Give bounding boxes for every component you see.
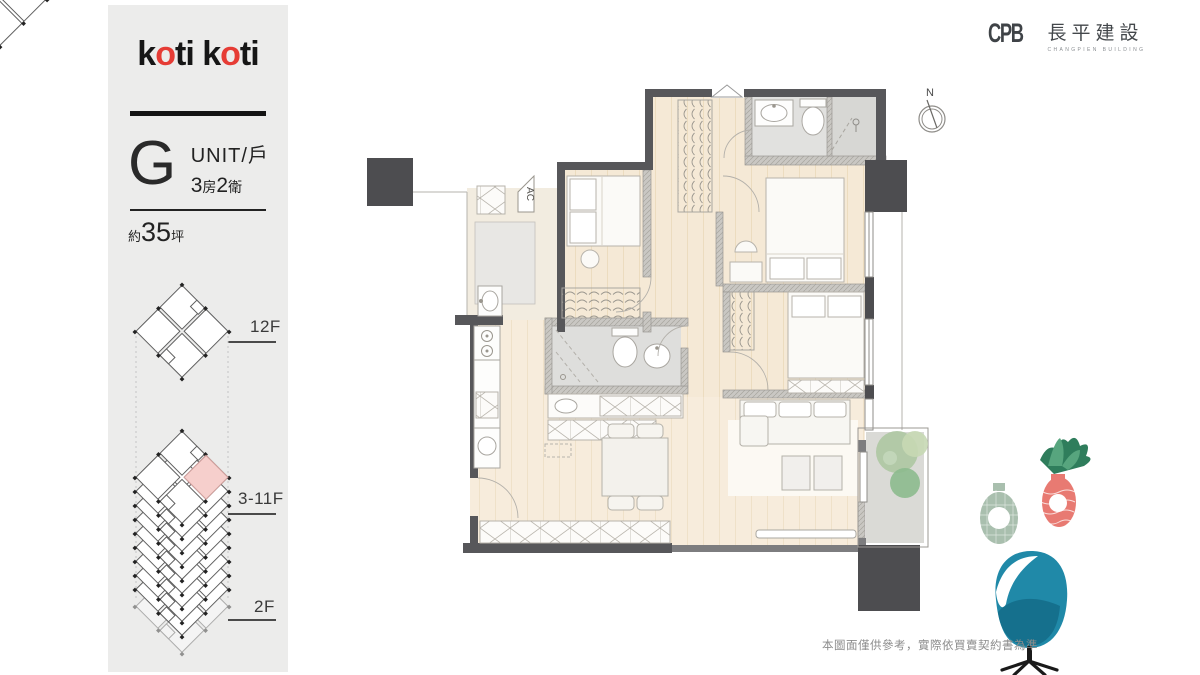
column-bottomright <box>858 545 920 611</box>
plant <box>902 431 928 457</box>
column-topright <box>865 160 907 212</box>
sofa-cushion <box>779 402 811 417</box>
chaise <box>740 416 768 446</box>
egg-chair-illustration <box>995 551 1067 675</box>
coral-vase-illustration <box>1040 438 1091 527</box>
floor-plan: AC <box>367 85 928 611</box>
pillow <box>828 296 861 317</box>
side-table <box>730 262 762 282</box>
chair <box>637 496 663 510</box>
hall-closet <box>678 100 712 212</box>
balcony-slider <box>860 452 867 502</box>
toilet-tank <box>612 328 638 336</box>
vanity-basin <box>555 399 577 413</box>
pantry-cabinet <box>477 186 505 214</box>
plan-graphics: AC N <box>0 0 1200 675</box>
top-entry-door <box>712 85 744 98</box>
pillow <box>570 179 596 210</box>
coffee-table <box>782 456 810 490</box>
pillow <box>792 296 825 317</box>
dining-table <box>602 438 668 496</box>
stove <box>474 326 500 360</box>
north-label: N <box>926 87 934 99</box>
column-topleft <box>367 158 413 206</box>
chair <box>608 424 634 438</box>
floor-plate <box>0 0 49 49</box>
company-logo-mark: CPB <box>988 18 1023 49</box>
wardrobe <box>730 292 754 350</box>
plant <box>890 468 920 498</box>
nightstand <box>581 250 599 268</box>
pillow <box>770 258 804 279</box>
stacking-diagram <box>0 0 231 656</box>
toilet-icon <box>613 337 637 367</box>
tv-console <box>756 530 856 538</box>
north-compass: N <box>919 87 945 132</box>
company-subtitle: CHANGPIEN BUILDING <box>1047 47 1145 53</box>
coffee-table <box>814 456 842 490</box>
sofa-cushion <box>744 402 776 417</box>
toilet-icon <box>802 107 824 135</box>
sage-vase-illustration <box>978 483 1020 545</box>
pillow <box>570 212 596 243</box>
company-logo: CPB 長平建設 CHANGPIEN BUILDING <box>988 18 1198 53</box>
storage-row <box>480 521 670 543</box>
sink <box>482 291 498 311</box>
sofa-cushion <box>814 402 846 417</box>
wardrobe <box>562 288 640 318</box>
disclaimer-text: 本圖面僅供參考，實際依買賣契約書為準 <box>822 637 1038 653</box>
ac-label: AC <box>524 187 535 201</box>
plate-12f <box>133 283 232 382</box>
shower-floor <box>830 97 876 157</box>
pillow <box>807 258 841 279</box>
floorplan-page: koti koti G UNIT/戶 3房2衛 約35坪 12F 3-11F 2… <box>0 0 1200 675</box>
round-sink <box>478 437 496 455</box>
bench <box>788 380 864 393</box>
chair <box>637 424 663 438</box>
company-name: 長平建設 <box>1047 18 1145 45</box>
toilet-tank <box>800 99 826 107</box>
chair <box>608 496 634 510</box>
